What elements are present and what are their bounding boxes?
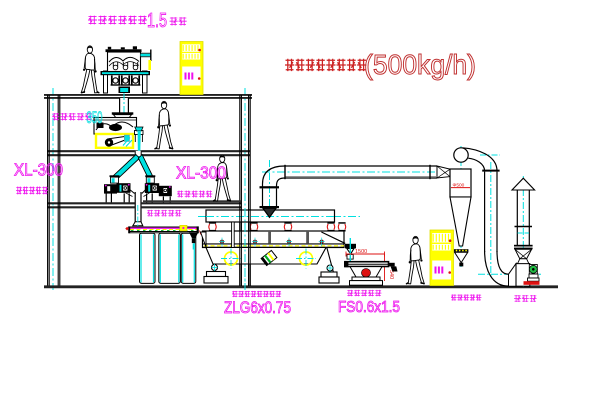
svg-text:XL-300: XL-300 [176, 163, 226, 183]
svg-text:FS0.6x1.5: FS0.6x1.5 [338, 299, 400, 316]
svg-text:XL-300: XL-300 [14, 160, 63, 180]
svg-text:(500kg/h): (500kg/h) [364, 49, 476, 80]
svg-text:350: 350 [87, 108, 103, 127]
svg-text:ZLG6x0.75: ZLG6x0.75 [224, 299, 291, 317]
svg-text:1.5: 1.5 [147, 10, 167, 32]
svg-text:1500: 1500 [355, 249, 367, 255]
